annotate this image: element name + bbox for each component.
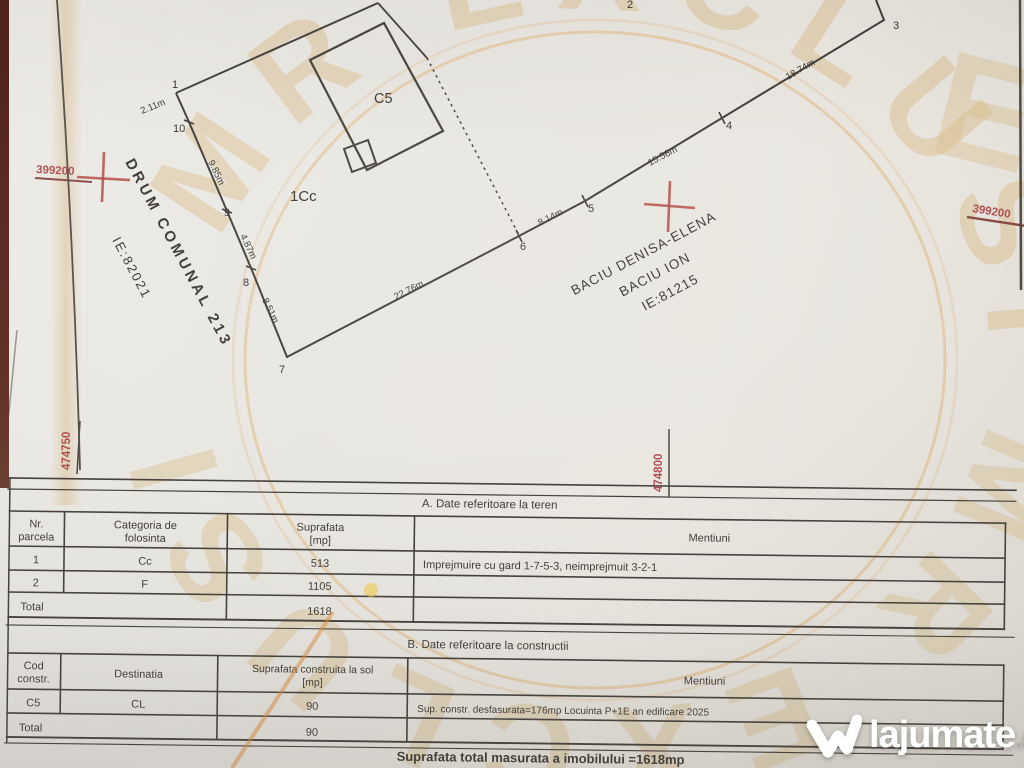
watermark-textpath-top: MR EXCLUSIV — [0, 0, 1024, 368]
table-a-r1-nr: 1 — [33, 554, 39, 566]
building-label: C5 — [374, 91, 393, 107]
table-a-header-suprafata-1: Suprafata — [296, 522, 345, 535]
dim-label: 8.14m — [536, 207, 565, 229]
table-a-header-nr-2: parcela — [18, 531, 55, 543]
table-b-header-suprafata-1: Suprafata construita la sol — [252, 663, 374, 676]
point-label-4: 4 — [726, 120, 732, 132]
logo-tld-text: .ro — [1015, 718, 1024, 758]
table-b-r1-cod: C5 — [26, 697, 40, 709]
dim-label: 8.51m — [259, 296, 280, 325]
table-b-header-cod-1: Cod — [24, 660, 44, 672]
table-b-header-cod-2: constr. — [17, 673, 50, 685]
grid-label-south-west: 474750 — [61, 432, 73, 470]
dim-label: 15.56m — [646, 144, 679, 169]
point-label-8: 8 — [243, 277, 249, 289]
table-a-header-suprafata-2: [mp] — [309, 535, 331, 547]
table-b-total-sup: 90 — [306, 727, 318, 739]
table-b-r1-dest: CL — [131, 698, 145, 710]
parcel-use-label: 1Cc — [290, 188, 317, 205]
table-a-r2-sup: 1105 — [308, 581, 332, 593]
point-label-1: 1 — [172, 79, 178, 91]
table-a-r1-cat: Cc — [138, 556, 152, 568]
table-a-header-mentiuni: Mentiuni — [688, 532, 730, 545]
watermark-text-top: MR EXCLUSIV — [0, 0, 1024, 368]
table-b-header-suprafata-2: [mp] — [302, 677, 323, 689]
point-label-2: 2 — [627, 0, 633, 11]
table-row-total: Total 90 — [19, 722, 318, 739]
watermark-circle-outer — [245, 32, 945, 688]
paper-fold-shade — [50, 0, 82, 505]
neighbor-label-block: BACIU DENISA-ELENA BACIU ION IE:81215 — [568, 209, 740, 340]
table-b-header-destinatia: Destinatia — [114, 668, 164, 681]
table-b-total-label: Total — [19, 722, 42, 734]
table-a-col1-line — [64, 512, 65, 593]
section-a-title: A. Date referitoare la teren — [422, 498, 558, 512]
table-b-col3-line — [407, 658, 408, 742]
tables-left-border — [7, 478, 10, 742]
table-a-header-categoria-1: Categoria de — [114, 519, 177, 532]
section-b-title: B. Date referitoare la constructii — [407, 639, 568, 653]
logo-brand-text: lajumate — [869, 712, 1015, 758]
photo-edge-stripe — [0, 0, 9, 488]
dim-label: 22.76m — [392, 278, 425, 302]
point-label-3: 3 — [893, 20, 899, 32]
point-label-9: 9 — [224, 207, 230, 219]
grid-cross-west-v — [102, 152, 104, 202]
tick-point-4 — [719, 112, 725, 124]
division-line-dashed — [427, 58, 519, 235]
table-a-r1-mentiuni: Imprejmuire cu gard 1-7-5-3, neimprejmui… — [423, 559, 657, 574]
total-measured-area-note: Suprafata total masurata a imobilului =1… — [397, 749, 685, 768]
grid-label-south-east: 474800 — [653, 454, 665, 492]
point-label-7: 7 — [279, 364, 285, 376]
lajumate-w-icon — [806, 712, 862, 758]
table-a-r2-nr: 2 — [33, 577, 39, 589]
table-a-col3-line — [413, 516, 414, 622]
table-a-total-label: Total — [20, 601, 43, 613]
lajumate-logo: lajumate.ro — [806, 712, 1024, 758]
table-a-header-nr-1: Nr. — [29, 518, 43, 530]
point-label-5: 5 — [588, 203, 594, 215]
table-b-header-mentiuni: Mentiuni — [684, 675, 726, 688]
watermark-stamp: MR EXCLUSIV MR EXCLUSIV E — [0, 0, 1024, 768]
dim-label: 2.11m — [139, 97, 167, 117]
table-b-r1-sup: 90 — [306, 701, 318, 713]
table-a-r1-sup: 513 — [311, 558, 330, 570]
table-a-header-categoria-2: folosinta — [125, 532, 167, 545]
point-label-10: 10 — [173, 123, 185, 135]
road-id-label: IE:82021 — [109, 234, 154, 301]
point-label-6: 6 — [520, 241, 526, 253]
table-b-col2-line — [217, 656, 218, 740]
grid-cross-center-v — [668, 181, 670, 232]
cadastral-plan-photo: MR EXCLUSIV MR EXCLUSIV E — [0, 0, 1024, 768]
table-a-r2-cat: F — [141, 579, 148, 591]
plan-right-border — [1020, 0, 1021, 290]
table-b-col1-line — [60, 654, 61, 714]
yellow-mark — [364, 583, 378, 597]
